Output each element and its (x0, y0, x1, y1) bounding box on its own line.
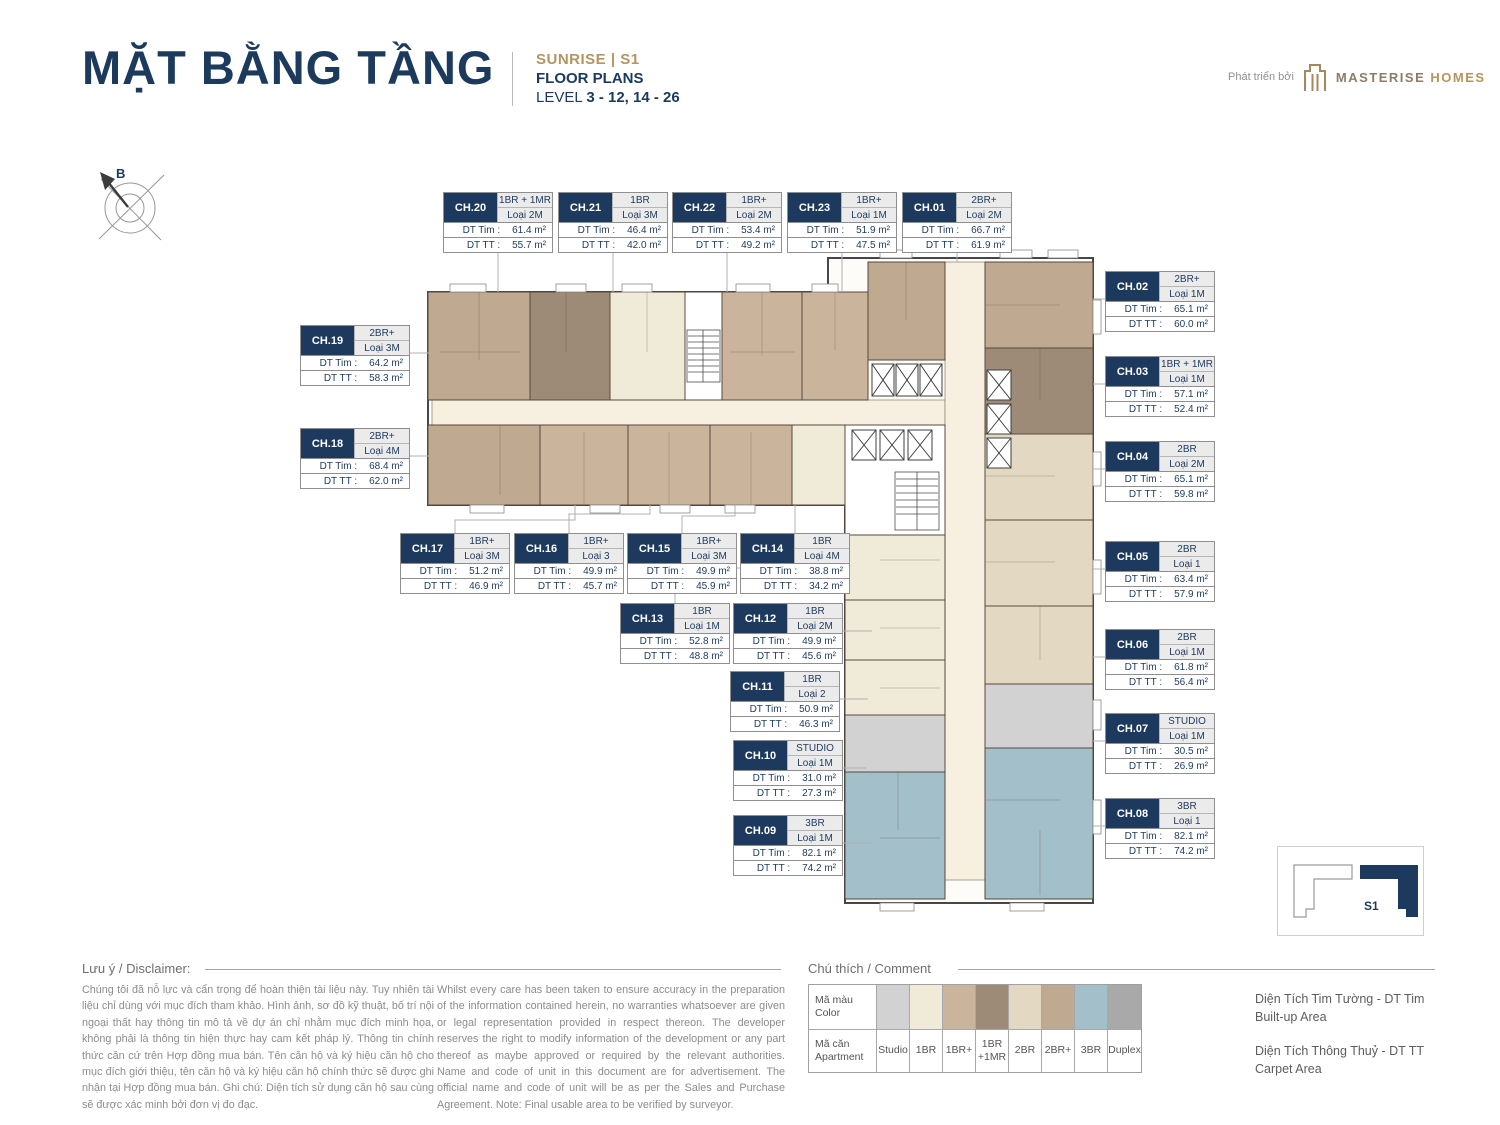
dt-tim-value: 82.1 m² (790, 848, 842, 859)
unit-carpet-row: DT TT :56.4 m² (1106, 674, 1214, 689)
unit-card-right: 2BRLoại 2M (1159, 442, 1214, 471)
unit-variant: Loại 1M (842, 208, 896, 222)
unit-type: 1BR+ (682, 534, 736, 549)
unit-card-top: CH.111BRLoại 2 (731, 672, 839, 701)
unit-card-top: CH.031BR + 1MRLoại 1M (1106, 357, 1214, 386)
dt-tim-value: 53.4 m² (729, 225, 781, 236)
unit-card-top: CH.093BRLoại 1M (734, 816, 842, 845)
unit-card-right: 3BRLoại 1M (787, 816, 842, 845)
unit-card-top: CH.07STUDIOLoại 1M (1106, 714, 1214, 743)
unit-card-top: CH.022BR+Loại 1M (1106, 272, 1214, 301)
dt-tim-value: 49.9 m² (684, 566, 736, 577)
dt-tim-label: DT Tim : (788, 225, 844, 236)
unit-id: CH.16 (515, 534, 568, 563)
dt-tt-label: DT TT : (444, 240, 500, 251)
dt-tim-value: 49.9 m² (571, 566, 623, 577)
dt-tim-label: DT Tim : (734, 773, 790, 784)
unit-card-right: 1BR + 1MRLoại 2M (497, 193, 552, 222)
unit-variant: Loại 2M (498, 208, 552, 222)
unit-card-right: 2BRLoại 1M (1159, 630, 1214, 659)
unit-id: CH.12 (734, 604, 787, 633)
unit-card-right: 2BR+Loại 3M (354, 326, 409, 355)
unit-variant: Loại 4M (795, 549, 849, 563)
unit-variant: Loại 3M (355, 341, 409, 355)
unit-variant: Loại 2M (727, 208, 781, 222)
unit-id: CH.22 (673, 193, 726, 222)
unit-card-top: CH.151BR+Loại 3M (628, 534, 736, 563)
dt-tim-value: 52.8 m² (677, 636, 729, 647)
dt-tim-label: DT Tim : (628, 566, 684, 577)
dt-tt-value: 57.9 m² (1162, 589, 1214, 600)
unit-label-card: CH.182BR+Loại 4MDT Tim :68.4 m²DT TT :62… (300, 428, 410, 489)
dt-tt-label: DT TT : (673, 240, 729, 251)
unit-card-right: 3BRLoại 1 (1159, 799, 1214, 828)
dt-tim-value: 50.9 m² (787, 704, 839, 715)
unit-card-right: 1BRLoại 4M (794, 534, 849, 563)
dt-tim-label: DT Tim : (301, 461, 357, 472)
unit-variant: Loại 3 (569, 549, 623, 563)
unit-card-right: STUDIOLoại 1M (1159, 714, 1214, 743)
unit-type: 2BR+ (355, 429, 409, 444)
dt-tt-label: DT TT : (301, 373, 357, 384)
unit-label-card: CH.201BR + 1MRLoại 2MDT Tim :61.4 m²DT T… (443, 192, 553, 253)
unit-id: CH.08 (1106, 799, 1159, 828)
unit-type: 1BR+ (842, 193, 896, 208)
unit-card-top: CH.042BRLoại 2M (1106, 442, 1214, 471)
unit-builtup-row: DT Tim :68.4 m² (301, 458, 409, 473)
unit-card-right: 1BR + 1MRLoại 1M (1159, 357, 1214, 386)
dt-tt-value: 60.0 m² (1162, 319, 1214, 330)
unit-id: CH.13 (621, 604, 674, 633)
unit-builtup-row: DT Tim :61.4 m² (444, 222, 552, 237)
dt-tt-value: 45.7 m² (571, 581, 623, 592)
unit-id: CH.01 (903, 193, 956, 222)
dt-tt-label: DT TT : (628, 581, 684, 592)
dt-tt-label: DT TT : (1106, 677, 1162, 688)
unit-type: 1BR (675, 604, 729, 619)
unit-label-card: CH.121BRLoại 2MDT Tim :49.9 m²DT TT :45.… (733, 603, 843, 664)
unit-card-top: CH.131BRLoại 1M (621, 604, 729, 633)
unit-carpet-row: DT TT :74.2 m² (1106, 843, 1214, 858)
unit-variant: Loại 3M (682, 549, 736, 563)
unit-variant: Loại 2M (957, 208, 1011, 222)
unit-label-card: CH.171BR+Loại 3MDT Tim :51.2 m²DT TT :46… (400, 533, 510, 594)
unit-carpet-row: DT TT :58.3 m² (301, 370, 409, 385)
unit-label-card: CH.131BRLoại 1MDT Tim :52.8 m²DT TT :48.… (620, 603, 730, 664)
unit-card-right: 2BR+Loại 1M (1159, 272, 1214, 301)
dt-tim-label: DT Tim : (1106, 574, 1162, 585)
dt-tt-value: 46.3 m² (787, 719, 839, 730)
dt-tt-label: DT TT : (734, 788, 790, 799)
unit-card-right: 1BRLoại 2M (787, 604, 842, 633)
unit-builtup-row: DT Tim :46.4 m² (559, 222, 667, 237)
dt-tim-value: 82.1 m² (1162, 831, 1214, 842)
dt-tt-label: DT TT : (1106, 319, 1162, 330)
dt-tt-value: 47.5 m² (844, 240, 896, 251)
dt-tim-label: DT Tim : (444, 225, 500, 236)
unit-card-top: CH.221BR+Loại 2M (673, 193, 781, 222)
dt-tt-label: DT TT : (401, 581, 457, 592)
unit-variant: Loại 1 (1160, 557, 1214, 571)
unit-type: 3BR (788, 816, 842, 831)
unit-label-card: CH.052BRLoại 1DT Tim :63.4 m²DT TT :57.9… (1105, 541, 1215, 602)
dt-tim-value: 38.8 m² (797, 566, 849, 577)
unit-builtup-row: DT Tim :38.8 m² (741, 563, 849, 578)
dt-tim-label: DT Tim : (559, 225, 615, 236)
unit-label-card: CH.062BRLoại 1MDT Tim :61.8 m²DT TT :56.… (1105, 629, 1215, 690)
dt-tim-label: DT Tim : (734, 848, 790, 859)
unit-card-top: CH.121BRLoại 2M (734, 604, 842, 633)
unit-variant: Loại 4M (355, 444, 409, 458)
unit-id: CH.19 (301, 326, 354, 355)
dt-tim-label: DT Tim : (1106, 831, 1162, 842)
dt-tt-label: DT TT : (903, 240, 959, 251)
unit-card-right: STUDIOLoại 1M (787, 741, 842, 770)
unit-card-right: 1BR+Loại 1M (841, 193, 896, 222)
unit-builtup-row: DT Tim :82.1 m² (1106, 828, 1214, 843)
unit-type: 1BR + 1MR (1160, 357, 1214, 372)
dt-tim-value: 46.4 m² (615, 225, 667, 236)
dt-tt-value: 42.0 m² (615, 240, 667, 251)
dt-tt-label: DT TT : (515, 581, 571, 592)
unit-variant: Loại 1M (1160, 645, 1214, 659)
unit-builtup-row: DT Tim :61.8 m² (1106, 659, 1214, 674)
dt-tim-value: 31.0 m² (790, 773, 842, 784)
unit-carpet-row: DT TT :27.3 m² (734, 785, 842, 800)
unit-label-card: CH.083BRLoại 1DT Tim :82.1 m²DT TT :74.2… (1105, 798, 1215, 859)
unit-type: 2BR+ (355, 326, 409, 341)
unit-builtup-row: DT Tim :30.5 m² (1106, 743, 1214, 758)
unit-carpet-row: DT TT :47.5 m² (788, 237, 896, 252)
dt-tt-label: DT TT : (734, 863, 790, 874)
unit-card-right: 1BRLoại 2 (784, 672, 839, 701)
unit-card-right: 1BR+Loại 3M (454, 534, 509, 563)
unit-variant: Loại 3M (455, 549, 509, 563)
dt-tim-value: 57.1 m² (1162, 389, 1214, 400)
dt-tim-label: DT Tim : (621, 636, 677, 647)
unit-variant: Loại 2M (788, 619, 842, 633)
dt-tt-value: 74.2 m² (1162, 846, 1214, 857)
unit-type: 2BR+ (957, 193, 1011, 208)
dt-tim-label: DT Tim : (903, 225, 959, 236)
dt-tt-label: DT TT : (734, 651, 790, 662)
unit-id: CH.14 (741, 534, 794, 563)
unit-carpet-row: DT TT :59.8 m² (1106, 486, 1214, 501)
unit-carpet-row: DT TT :46.3 m² (731, 716, 839, 731)
unit-builtup-row: DT Tim :49.9 m² (628, 563, 736, 578)
unit-type: 1BR+ (727, 193, 781, 208)
unit-label-card: CH.07STUDIOLoại 1MDT Tim :30.5 m²DT TT :… (1105, 713, 1215, 774)
unit-card-top: CH.012BR+Loại 2M (903, 193, 1011, 222)
unit-builtup-row: DT Tim :63.4 m² (1106, 571, 1214, 586)
dt-tt-value: 58.3 m² (357, 373, 409, 384)
dt-tim-label: DT Tim : (301, 358, 357, 369)
unit-variant: Loại 1M (788, 831, 842, 845)
unit-id: CH.17 (401, 534, 454, 563)
unit-variant: Loại 1M (675, 619, 729, 633)
unit-card-top: CH.062BRLoại 1M (1106, 630, 1214, 659)
dt-tim-label: DT Tim : (673, 225, 729, 236)
unit-variant: Loại 1M (1160, 372, 1214, 386)
unit-label-card: CH.093BRLoại 1MDT Tim :82.1 m²DT TT :74.… (733, 815, 843, 876)
unit-builtup-row: DT Tim :52.8 m² (621, 633, 729, 648)
unit-type: STUDIO (788, 741, 842, 756)
unit-carpet-row: DT TT :60.0 m² (1106, 316, 1214, 331)
unit-type: 1BR + 1MR (498, 193, 552, 208)
unit-card-top: CH.171BR+Loại 3M (401, 534, 509, 563)
unit-id: CH.09 (734, 816, 787, 845)
dt-tim-value: 49.9 m² (790, 636, 842, 647)
unit-label-card: CH.042BRLoại 2MDT Tim :65.1 m²DT TT :59.… (1105, 441, 1215, 502)
unit-label-card: CH.192BR+Loại 3MDT Tim :64.2 m²DT TT :58… (300, 325, 410, 386)
unit-label-card: CH.141BRLoại 4MDT Tim :38.8 m²DT TT :34.… (740, 533, 850, 594)
dt-tim-label: DT Tim : (515, 566, 571, 577)
dt-tt-value: 52.4 m² (1162, 404, 1214, 415)
unit-variant: Loại 2 (785, 687, 839, 701)
unit-carpet-row: DT TT :55.7 m² (444, 237, 552, 252)
unit-variant: Loại 3M (613, 208, 667, 222)
dt-tt-value: 48.8 m² (677, 651, 729, 662)
dt-tim-label: DT Tim : (734, 636, 790, 647)
unit-label-card: CH.211BRLoại 3MDT Tim :46.4 m²DT TT :42.… (558, 192, 668, 253)
unit-type: 1BR (785, 672, 839, 687)
dt-tt-label: DT TT : (788, 240, 844, 251)
unit-variant: Loại 1 (1160, 814, 1214, 828)
unit-label-card: CH.111BRLoại 2DT Tim :50.9 m²DT TT :46.3… (730, 671, 840, 732)
unit-builtup-row: DT Tim :31.0 m² (734, 770, 842, 785)
unit-carpet-row: DT TT :26.9 m² (1106, 758, 1214, 773)
unit-card-top: CH.211BRLoại 3M (559, 193, 667, 222)
unit-type: 1BR (795, 534, 849, 549)
dt-tt-value: 59.8 m² (1162, 489, 1214, 500)
unit-card-right: 1BR+Loại 2M (726, 193, 781, 222)
unit-builtup-row: DT Tim :64.2 m² (301, 355, 409, 370)
unit-card-right: 2BR+Loại 4M (354, 429, 409, 458)
unit-carpet-row: DT TT :34.2 m² (741, 578, 849, 593)
unit-builtup-row: DT Tim :51.9 m² (788, 222, 896, 237)
unit-carpet-row: DT TT :61.9 m² (903, 237, 1011, 252)
dt-tt-value: 56.4 m² (1162, 677, 1214, 688)
dt-tt-label: DT TT : (1106, 589, 1162, 600)
dt-tt-label: DT TT : (301, 476, 357, 487)
dt-tt-value: 27.3 m² (790, 788, 842, 799)
dt-tim-label: DT Tim : (1106, 389, 1162, 400)
unit-builtup-row: DT Tim :65.1 m² (1106, 301, 1214, 316)
unit-carpet-row: DT TT :48.8 m² (621, 648, 729, 663)
unit-card-top: CH.201BR + 1MRLoại 2M (444, 193, 552, 222)
dt-tt-label: DT TT : (1106, 761, 1162, 772)
dt-tim-value: 30.5 m² (1162, 746, 1214, 757)
unit-label-card: CH.10STUDIOLoại 1MDT Tim :31.0 m²DT TT :… (733, 740, 843, 801)
dt-tt-value: 49.2 m² (729, 240, 781, 251)
dt-tim-value: 51.2 m² (457, 566, 509, 577)
dt-tim-value: 64.2 m² (357, 358, 409, 369)
unit-card-top: CH.192BR+Loại 3M (301, 326, 409, 355)
unit-label-card: CH.231BR+Loại 1MDT Tim :51.9 m²DT TT :47… (787, 192, 897, 253)
dt-tt-label: DT TT : (731, 719, 787, 730)
unit-carpet-row: DT TT :62.0 m² (301, 473, 409, 488)
unit-variant: Loại 1M (1160, 287, 1214, 301)
dt-tt-value: 26.9 m² (1162, 761, 1214, 772)
unit-carpet-row: DT TT :74.2 m² (734, 860, 842, 875)
unit-card-right: 1BR+Loại 3M (681, 534, 736, 563)
unit-id: CH.20 (444, 193, 497, 222)
unit-builtup-row: DT Tim :49.9 m² (734, 633, 842, 648)
dt-tt-value: 45.6 m² (790, 651, 842, 662)
unit-type: 2BR (1160, 542, 1214, 557)
unit-carpet-row: DT TT :42.0 m² (559, 237, 667, 252)
unit-id: CH.18 (301, 429, 354, 458)
unit-carpet-row: DT TT :45.9 m² (628, 578, 736, 593)
dt-tim-value: 65.1 m² (1162, 474, 1214, 485)
unit-builtup-row: DT Tim :65.1 m² (1106, 471, 1214, 486)
unit-card-right: 2BRLoại 1 (1159, 542, 1214, 571)
unit-carpet-row: DT TT :45.6 m² (734, 648, 842, 663)
dt-tim-value: 51.9 m² (844, 225, 896, 236)
unit-type: 1BR (613, 193, 667, 208)
dt-tim-value: 68.4 m² (357, 461, 409, 472)
unit-carpet-row: DT TT :45.7 m² (515, 578, 623, 593)
unit-builtup-row: DT Tim :53.4 m² (673, 222, 781, 237)
dt-tt-label: DT TT : (1106, 404, 1162, 415)
unit-card-top: CH.141BRLoại 4M (741, 534, 849, 563)
unit-type: 2BR+ (1160, 272, 1214, 287)
unit-label-card: CH.151BR+Loại 3MDT Tim :49.9 m²DT TT :45… (627, 533, 737, 594)
unit-label-card: CH.022BR+Loại 1MDT Tim :65.1 m²DT TT :60… (1105, 271, 1215, 332)
unit-id: CH.15 (628, 534, 681, 563)
unit-card-right: 2BR+Loại 2M (956, 193, 1011, 222)
unit-variant: Loại 1M (788, 756, 842, 770)
dt-tt-value: 45.9 m² (684, 581, 736, 592)
unit-id: CH.11 (731, 672, 784, 701)
unit-id: CH.10 (734, 741, 787, 770)
unit-id: CH.06 (1106, 630, 1159, 659)
unit-type: 2BR (1160, 630, 1214, 645)
unit-id: CH.23 (788, 193, 841, 222)
unit-builtup-row: DT Tim :50.9 m² (731, 701, 839, 716)
unit-builtup-row: DT Tim :51.2 m² (401, 563, 509, 578)
dt-tt-label: DT TT : (1106, 489, 1162, 500)
unit-type: 1BR+ (455, 534, 509, 549)
unit-card-top: CH.10STUDIOLoại 1M (734, 741, 842, 770)
unit-type: STUDIO (1160, 714, 1214, 729)
unit-carpet-row: DT TT :49.2 m² (673, 237, 781, 252)
unit-card-top: CH.052BRLoại 1 (1106, 542, 1214, 571)
unit-label-card: CH.031BR + 1MRLoại 1MDT Tim :57.1 m²DT T… (1105, 356, 1215, 417)
unit-card-right: 1BRLoại 3M (612, 193, 667, 222)
dt-tim-value: 61.8 m² (1162, 662, 1214, 673)
unit-carpet-row: DT TT :46.9 m² (401, 578, 509, 593)
unit-id: CH.02 (1106, 272, 1159, 301)
dt-tim-value: 65.1 m² (1162, 304, 1214, 315)
unit-id: CH.21 (559, 193, 612, 222)
dt-tim-label: DT Tim : (401, 566, 457, 577)
unit-type: 3BR (1160, 799, 1214, 814)
unit-carpet-row: DT TT :52.4 m² (1106, 401, 1214, 416)
unit-type: 1BR+ (569, 534, 623, 549)
unit-carpet-row: DT TT :57.9 m² (1106, 586, 1214, 601)
dt-tim-value: 61.4 m² (500, 225, 552, 236)
dt-tt-value: 34.2 m² (797, 581, 849, 592)
unit-card-right: 1BR+Loại 3 (568, 534, 623, 563)
dt-tim-label: DT Tim : (731, 704, 787, 715)
unit-card-top: CH.161BR+Loại 3 (515, 534, 623, 563)
dt-tim-value: 66.7 m² (959, 225, 1011, 236)
dt-tt-value: 46.9 m² (457, 581, 509, 592)
unit-id: CH.05 (1106, 542, 1159, 571)
unit-builtup-row: DT Tim :82.1 m² (734, 845, 842, 860)
dt-tim-label: DT Tim : (1106, 746, 1162, 757)
dt-tt-value: 74.2 m² (790, 863, 842, 874)
dt-tt-value: 55.7 m² (500, 240, 552, 251)
unit-id: CH.04 (1106, 442, 1159, 471)
unit-card-top: CH.231BR+Loại 1M (788, 193, 896, 222)
unit-builtup-row: DT Tim :49.9 m² (515, 563, 623, 578)
dt-tim-label: DT Tim : (1106, 474, 1162, 485)
unit-card-right: 1BRLoại 1M (674, 604, 729, 633)
unit-type: 2BR (1160, 442, 1214, 457)
dt-tim-label: DT Tim : (741, 566, 797, 577)
dt-tim-label: DT Tim : (1106, 304, 1162, 315)
unit-builtup-row: DT Tim :57.1 m² (1106, 386, 1214, 401)
dt-tt-value: 61.9 m² (959, 240, 1011, 251)
dt-tim-label: DT Tim : (1106, 662, 1162, 673)
dt-tt-label: DT TT : (741, 581, 797, 592)
dt-tt-label: DT TT : (621, 651, 677, 662)
unit-id: CH.07 (1106, 714, 1159, 743)
north-arrow-icon (100, 172, 128, 207)
unit-variant: Loại 2M (1160, 457, 1214, 471)
dt-tt-value: 62.0 m² (357, 476, 409, 487)
unit-label-card: CH.221BR+Loại 2MDT Tim :53.4 m²DT TT :49… (672, 192, 782, 253)
unit-label-card: CH.012BR+Loại 2MDT Tim :66.7 m²DT TT :61… (902, 192, 1012, 253)
unit-variant: Loại 1M (1160, 729, 1214, 743)
unit-builtup-row: DT Tim :66.7 m² (903, 222, 1011, 237)
dt-tim-value: 63.4 m² (1162, 574, 1214, 585)
unit-id: CH.03 (1106, 357, 1159, 386)
dt-tt-label: DT TT : (1106, 846, 1162, 857)
unit-card-top: CH.083BRLoại 1 (1106, 799, 1214, 828)
unit-type: 1BR (788, 604, 842, 619)
dt-tt-label: DT TT : (559, 240, 615, 251)
unit-card-top: CH.182BR+Loại 4M (301, 429, 409, 458)
unit-label-card: CH.161BR+Loại 3DT Tim :49.9 m²DT TT :45.… (514, 533, 624, 594)
